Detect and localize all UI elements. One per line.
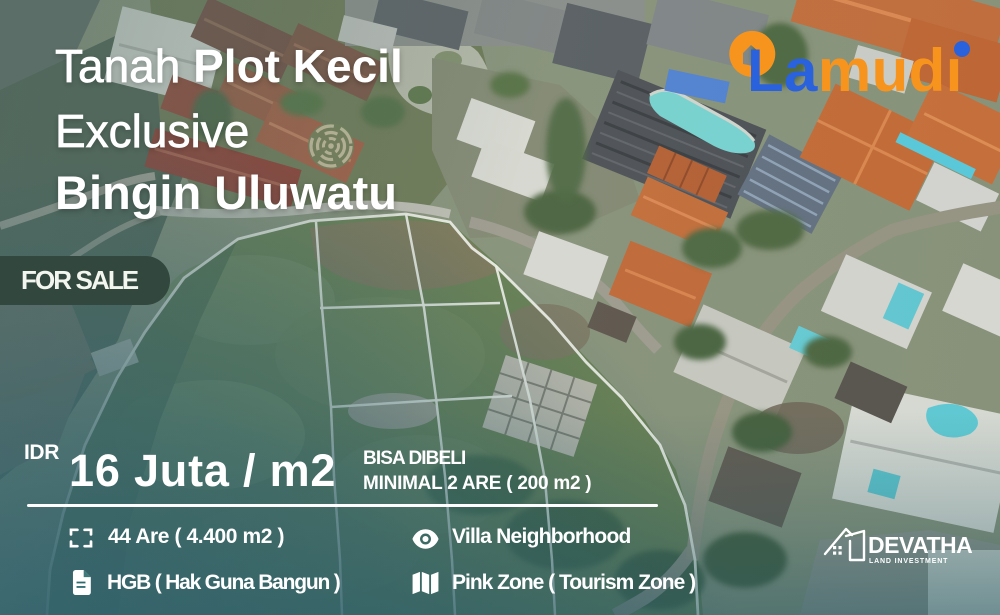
svg-text:DEVATHA: DEVATHA — [868, 532, 972, 558]
svg-text:LAND INVESTMENT: LAND INVESTMENT — [869, 558, 948, 565]
svg-text:Lamudı: Lamudı — [747, 37, 963, 104]
